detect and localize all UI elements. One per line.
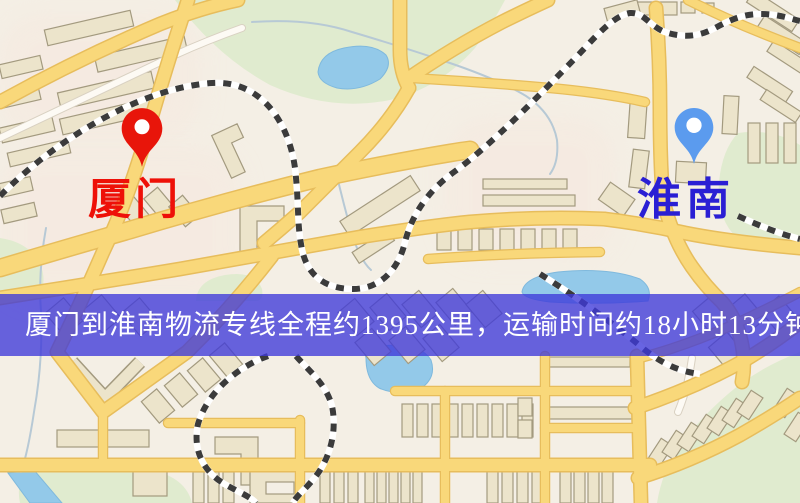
destination-pin-icon — [673, 107, 715, 166]
route-info-banner: 厦门到淮南物流专线全程约1395公里，运输时间约18小时13分钟. — [0, 294, 800, 356]
origin-city-label: 厦门 — [88, 179, 182, 222]
origin-pin-icon — [120, 107, 164, 169]
destination-city-label: 淮南 — [637, 178, 735, 222]
blue-marker-icon — [673, 107, 715, 166]
red-marker-icon — [120, 107, 164, 169]
route-map-image: 厦门到淮南物流专线全程约1395公里，运输时间约18小时13分钟. 厦门 淮南 — [0, 0, 800, 503]
route-info-text: 厦门到淮南物流专线全程约1395公里，运输时间约18小时13分钟. — [0, 312, 800, 339]
map-canvas — [0, 0, 800, 503]
